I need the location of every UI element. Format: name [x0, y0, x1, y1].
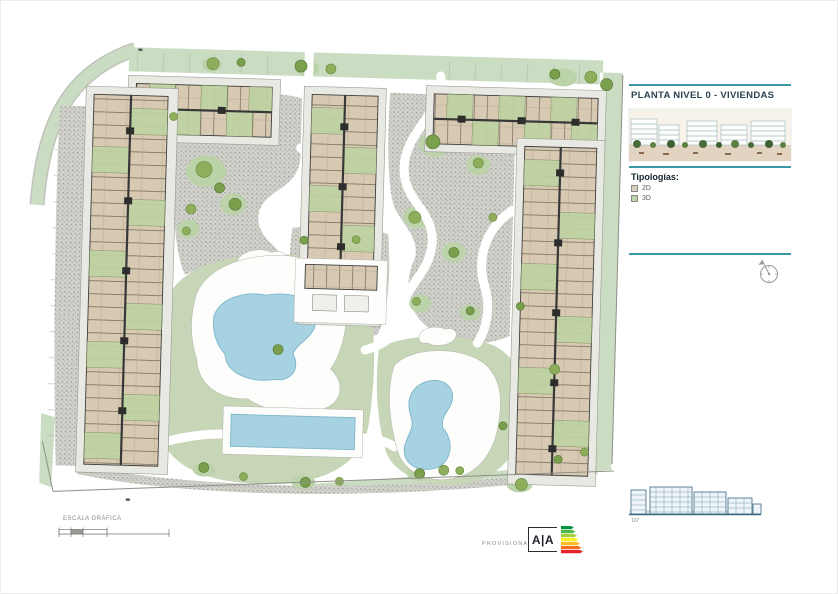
- provisional-label: PROVISIONAL: [482, 541, 533, 547]
- divider-top: [629, 84, 791, 86]
- divider-middle: [629, 166, 791, 168]
- legend-item-3d: 3D: [631, 195, 651, 202]
- legend-item-2d: 2D: [631, 185, 651, 192]
- render-thumbnail: [629, 109, 791, 161]
- scale-label: ESCALA GRÁFICA: [63, 516, 122, 522]
- typologies-heading: Tipologías:: [631, 172, 679, 182]
- building-left: [76, 86, 179, 474]
- legend-label: 3D: [642, 195, 651, 202]
- divider-bottom: [629, 253, 791, 255]
- site-plan: [29, 43, 625, 515]
- slide-canvas: PLANTA NIVEL 0 - VIVIENDAS Tipologías: 2…: [0, 0, 838, 594]
- scale-bar: [59, 528, 169, 538]
- building-right: [507, 138, 605, 486]
- north-compass-icon: [759, 260, 778, 283]
- legend-label: 2D: [642, 185, 651, 192]
- aa-logo: A|A: [528, 527, 557, 552]
- legend-swatch-2d: [631, 185, 638, 192]
- legend-swatch-3d: [631, 195, 638, 202]
- elevation-drawing-label: 107: [631, 518, 639, 524]
- page-title: PLANTA NIVEL 0 - VIVIENDAS: [631, 90, 801, 101]
- building-communal: [294, 258, 388, 325]
- lap-pool: [230, 414, 355, 449]
- building-elevation-drawing: [629, 487, 761, 515]
- energy-rating-icon: [561, 526, 583, 553]
